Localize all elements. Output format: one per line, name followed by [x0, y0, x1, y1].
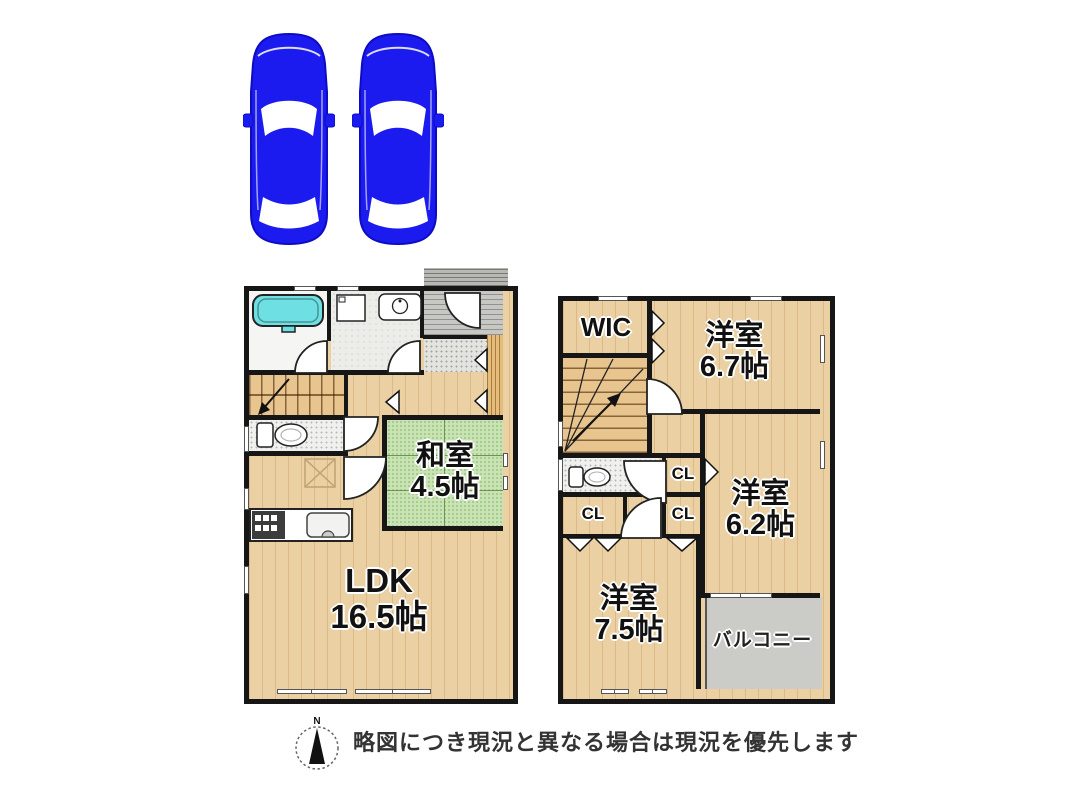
room-label: 和室 [387, 441, 503, 472]
wall-segment [563, 353, 652, 358]
entrance-floor [424, 291, 503, 335]
room-size: 7.5帖 [563, 615, 695, 646]
wall-segment [563, 492, 704, 497]
room-yoshitsu-6-2: 洋室 6.2帖 [704, 479, 817, 542]
stairs-2f [563, 357, 647, 453]
wall-segment [420, 291, 424, 338]
wall-segment [249, 415, 348, 420]
window-marker [558, 459, 563, 491]
floor2-plan: WIC 洋室 6.7帖 洋室 6.2帖 洋室 7.5帖 CL CL CL バルコ… [558, 296, 835, 704]
balcony-door-marker [710, 593, 772, 598]
room-yoshitsu-6-7: 洋室 6.7帖 [652, 321, 817, 384]
window-marker [598, 296, 628, 301]
window-marker [244, 566, 249, 594]
window-marker [820, 441, 825, 469]
room-size: 6.2帖 [704, 510, 817, 541]
room-washitsu: 和室 4.5帖 [387, 441, 503, 504]
window-marker [558, 421, 563, 447]
shoe-storage-floor [424, 339, 487, 372]
window-marker [503, 453, 508, 467]
floor1-plan: 和室 4.5帖 LDK 16.5帖 [244, 286, 518, 704]
car-icon [352, 30, 444, 248]
room-label: 洋室 [652, 321, 817, 352]
window-marker [355, 689, 431, 694]
toilet-floor-2f [563, 458, 659, 492]
room-size: 4.5帖 [387, 472, 503, 503]
window-marker [820, 335, 825, 363]
room-label: WIC [563, 313, 649, 341]
window-marker [639, 689, 667, 694]
room-size: 6.7帖 [652, 352, 817, 383]
disclaimer-text: 略図につき現況と異なる場合は現況を優先します [353, 725, 859, 757]
compass-north-label: N [313, 716, 320, 727]
washroom-floor [331, 291, 420, 370]
wall-segment [647, 409, 820, 414]
floorplan-canvas: 和室 4.5帖 LDK 16.5帖 [0, 0, 1067, 800]
window-marker [277, 689, 347, 694]
wall-segment [563, 534, 627, 538]
room-size: 16.5帖 [269, 599, 489, 635]
window-marker [244, 426, 249, 452]
window-marker [337, 286, 359, 291]
car-icon [243, 30, 335, 248]
bathroom-floor [249, 291, 327, 375]
wall-segment [563, 453, 704, 458]
room-label: 洋室 [563, 584, 695, 615]
wall-segment [327, 291, 331, 341]
room-label: LDK [269, 563, 489, 599]
wall-segment [249, 370, 424, 375]
wall-segment [423, 335, 487, 339]
wall-segment [344, 375, 348, 417]
window-marker [244, 488, 249, 510]
closet-label: CL [563, 505, 623, 523]
stairs-1f [249, 375, 344, 415]
wall-segment [696, 538, 701, 689]
window-marker [601, 689, 629, 694]
room-ldk: LDK 16.5帖 [269, 563, 489, 634]
closet-label: CL [664, 465, 702, 483]
closet-label: CL [664, 505, 702, 523]
window-marker [750, 296, 782, 301]
wall-segment [382, 415, 503, 420]
wall-segment [382, 526, 503, 531]
window-marker [294, 286, 316, 291]
window-marker [503, 476, 508, 490]
compass-icon: N [290, 712, 344, 774]
room-wic: WIC [563, 313, 649, 341]
wall-segment [623, 497, 627, 538]
room-yoshitsu-7-5: 洋室 7.5帖 [563, 584, 695, 647]
wall-segment [249, 451, 348, 456]
balcony-label: バルコニー [705, 631, 820, 652]
room-label: 洋室 [704, 479, 817, 510]
toilet-floor-1f [249, 420, 344, 451]
wall-segment [647, 414, 652, 458]
entry-step [487, 335, 503, 420]
